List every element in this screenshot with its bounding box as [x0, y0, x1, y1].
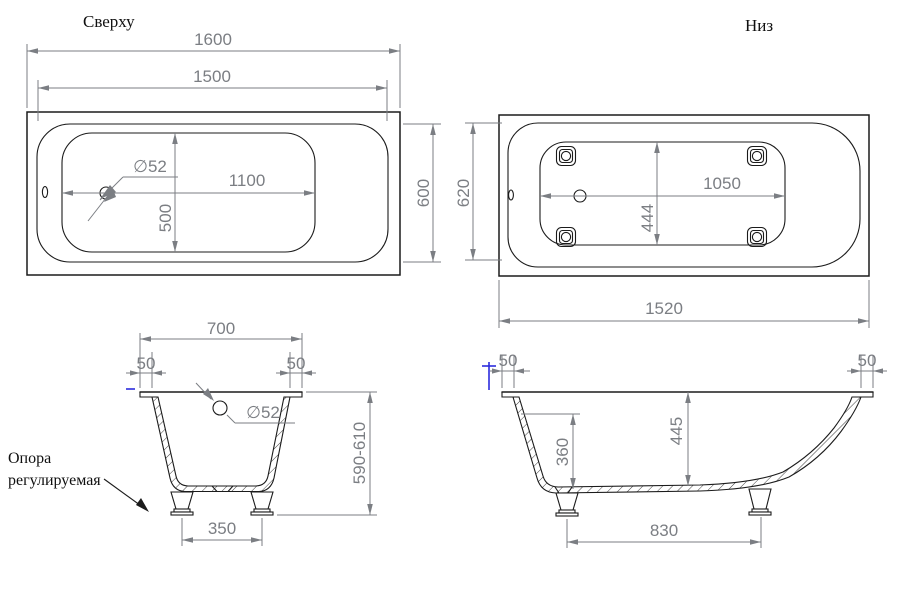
overflow-hole-bottom	[509, 190, 514, 200]
dim-label-500: 500	[156, 204, 175, 232]
dim-label-1500: 1500	[193, 67, 231, 86]
overflow-hole	[42, 187, 47, 198]
dim-center-depth: 445	[667, 392, 688, 486]
dim-label-445: 445	[667, 417, 686, 445]
support-annotation: Опора регулируемая	[8, 450, 149, 512]
dim-drain-offset: 1100	[62, 171, 315, 193]
dim-lip-left-side: 50	[490, 351, 530, 388]
dim-label-50-front-right: 50	[287, 354, 306, 373]
bathtub-technical-drawing: Сверху 1600 1500 1100 500	[0, 0, 903, 615]
dim-feet-span-front: 350	[182, 518, 262, 546]
top-view-title: Сверху	[83, 12, 135, 31]
dim-label-50-front-left: 50	[137, 354, 156, 373]
drain-hole-section	[213, 401, 227, 415]
dim-label-360: 360	[553, 438, 572, 466]
top-view: Сверху 1600 1500 1100 500	[27, 12, 441, 275]
dim-lip-left-front: 50	[126, 352, 166, 388]
foot-pad-top-left	[557, 147, 576, 166]
dim-rim-width: 600	[403, 124, 441, 262]
dim-label-830: 830	[650, 521, 678, 540]
dim-rim-length: 1500	[38, 67, 387, 121]
dim-label-444: 444	[638, 204, 657, 232]
support-label-line2: регулируемая	[8, 472, 101, 489]
side-foot-left	[556, 493, 578, 516]
dim-feet-span-width: 444	[638, 142, 657, 245]
side-section-view: 50 50 360 445 830	[482, 351, 887, 548]
foot-pad-bottom-right	[748, 228, 767, 247]
dim-label-50-side-right: 50	[858, 351, 877, 370]
dim-label-700: 700	[207, 319, 235, 338]
blue-reference-tick-side	[482, 362, 496, 390]
support-leader-arrow	[136, 498, 149, 512]
dim-lip-right-front: 50	[276, 352, 316, 388]
dim-feet-span-side: 830	[567, 517, 761, 548]
front-section-view: ∅52 700 50 50	[8, 319, 377, 546]
dim-label-1600: 1600	[194, 30, 232, 49]
front-foot-right	[251, 492, 273, 515]
dim-bottom-width: 620	[454, 123, 502, 260]
support-label-line1: Опора	[8, 450, 51, 467]
dim-label-620: 620	[454, 179, 473, 207]
side-foot-right	[749, 489, 771, 515]
dim-label-590-610: 590-610	[350, 422, 369, 484]
dim-label-350: 350	[208, 519, 236, 538]
dim-label-d52-section: ∅52	[246, 403, 280, 422]
dim-label-50-side-left: 50	[499, 351, 518, 370]
bottom-view: Низ 62	[454, 16, 869, 328]
bottom-view-title: Низ	[745, 16, 773, 35]
dim-label-d52-top: ∅52	[133, 157, 167, 176]
dim-bottom-length: 1520	[499, 280, 869, 328]
dim-label-1100: 1100	[229, 171, 266, 190]
dim-label-600: 600	[414, 179, 433, 207]
dim-top-width: 700	[140, 319, 302, 388]
dim-label-1050: 1050	[703, 174, 741, 193]
foot-pad-top-right	[748, 147, 767, 166]
drawing-canvas: Сверху 1600 1500 1100 500	[0, 0, 903, 615]
dim-height-range: 590-610	[277, 392, 377, 515]
dim-lip-right-side: 50	[847, 351, 887, 388]
front-foot-left	[171, 492, 193, 515]
dim-label-1520: 1520	[645, 299, 683, 318]
